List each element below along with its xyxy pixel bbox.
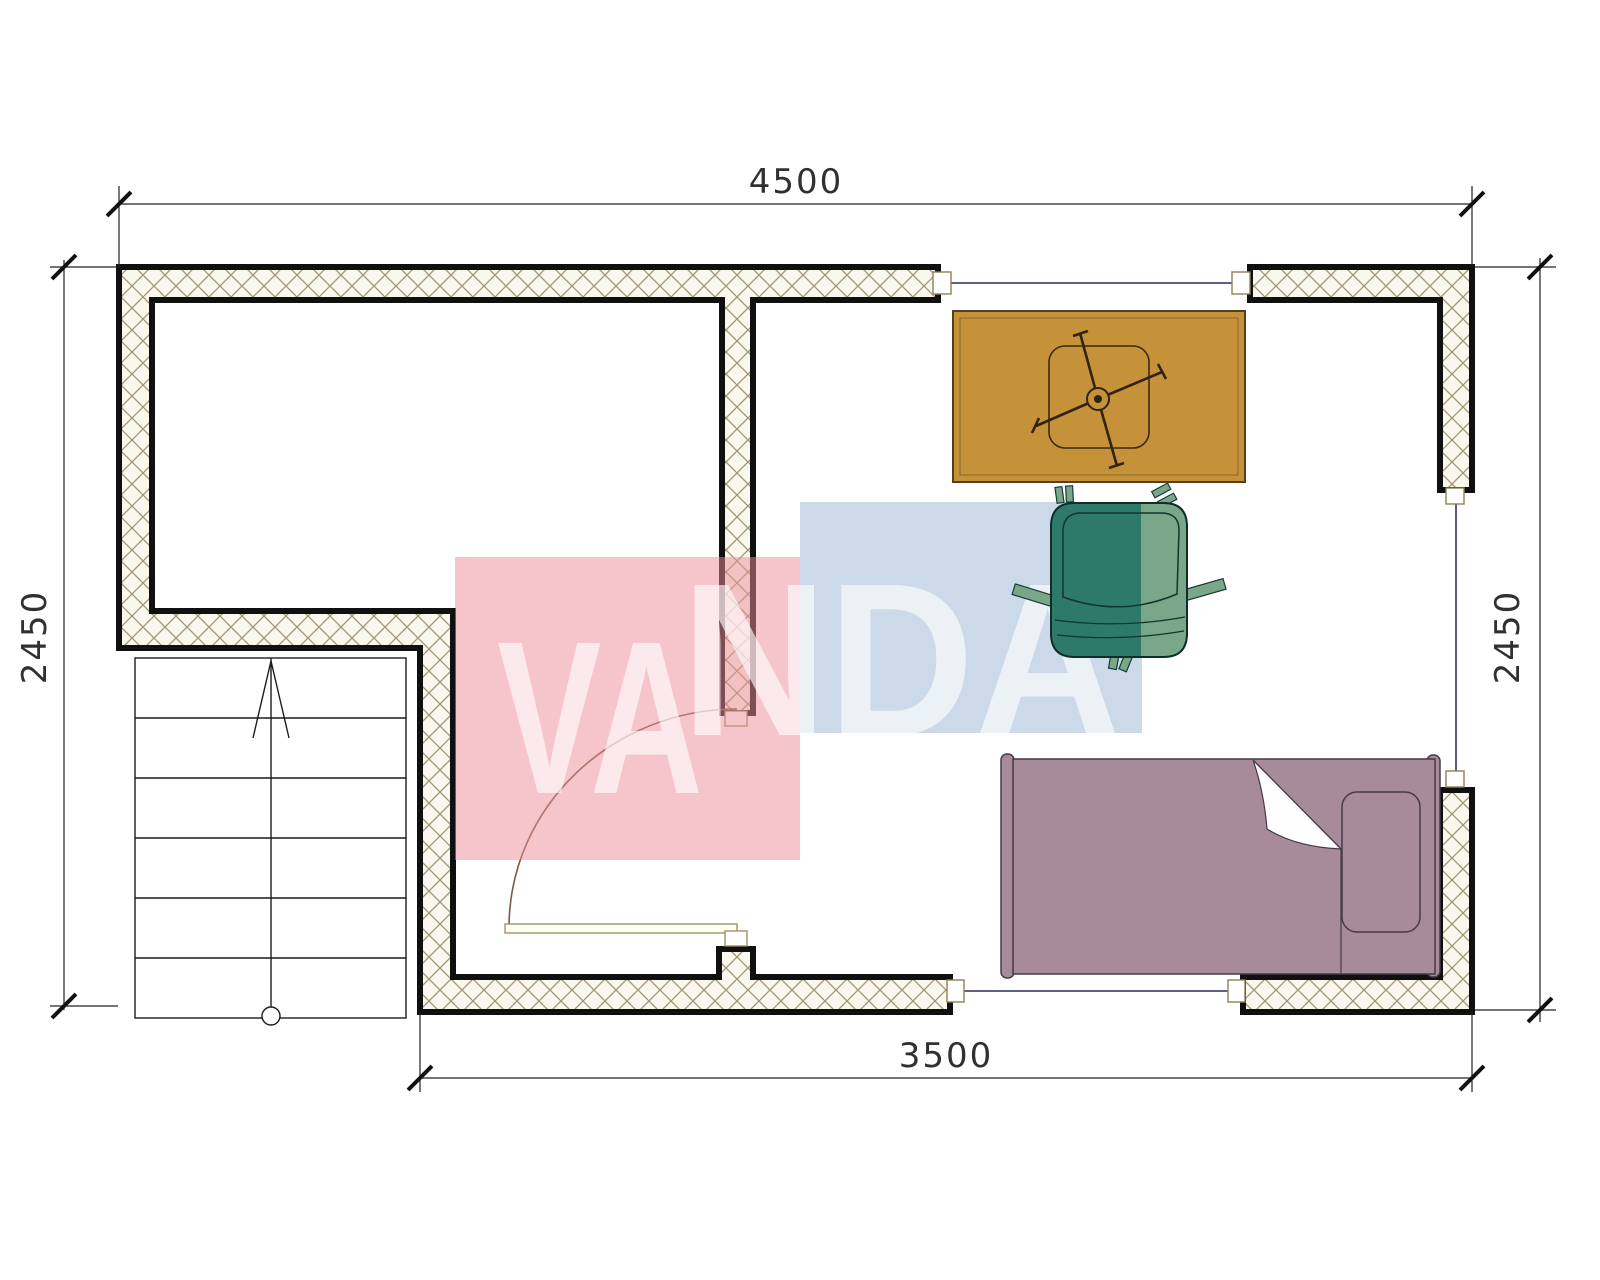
window-cap <box>1228 980 1245 1002</box>
dim-left-lines <box>50 260 119 1010</box>
window-cap <box>1446 488 1464 504</box>
window-cap <box>933 272 951 294</box>
dim-label-right: 2450 <box>1488 590 1528 685</box>
armchair-arm-right <box>1183 579 1226 601</box>
dim-label-top: 4500 <box>749 162 844 202</box>
wall-top-right-corner <box>1250 267 1472 490</box>
window-cap <box>1446 771 1464 787</box>
armchair-prong <box>1055 487 1064 504</box>
bed-pillow <box>1342 792 1420 932</box>
watermark-text-va: VA <box>497 597 703 840</box>
window-cap <box>947 980 964 1002</box>
table <box>953 311 1245 482</box>
stair-start-circle <box>262 1007 280 1025</box>
armchair-prong <box>1066 486 1074 502</box>
dim-label-bottom: 3500 <box>899 1036 994 1076</box>
dim-label-left: 2450 <box>15 590 55 685</box>
window-cap <box>1232 272 1250 294</box>
floor-plan-canvas: 4500 3500 2450 2450 VA NDA <box>0 0 1600 1280</box>
chair-base-hub-center <box>1094 395 1102 403</box>
floorplan-svg: 4500 3500 2450 2450 VA NDA <box>0 0 1600 1280</box>
bed-headboard <box>1001 754 1014 978</box>
staircase <box>135 658 406 1025</box>
bed <box>1001 754 1440 978</box>
door-frame-bottom <box>725 931 747 946</box>
door-leaf <box>505 924 737 933</box>
